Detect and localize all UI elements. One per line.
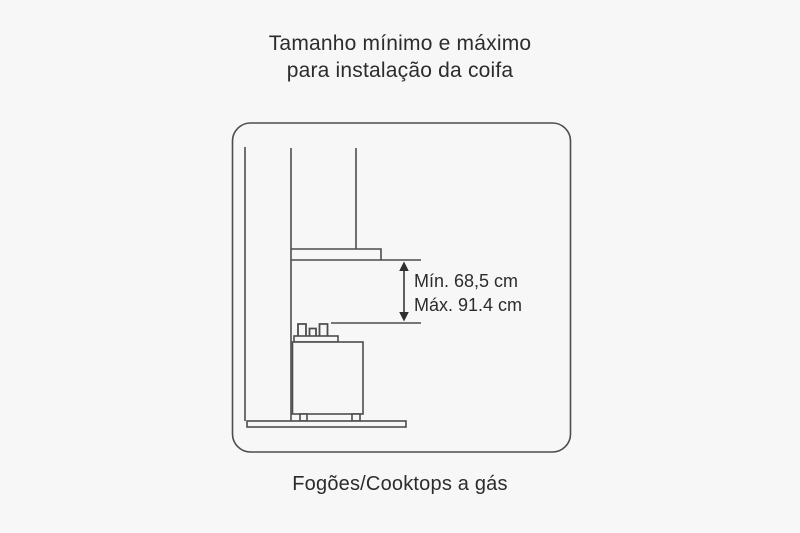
hood-shape: [291, 249, 421, 260]
burner-grates-icon: [298, 324, 328, 336]
diagram-frame: [233, 123, 571, 452]
max-distance-label: Máx. 91.4 cm: [414, 295, 522, 315]
distance-arrow: [399, 262, 409, 322]
arrow-up-head-icon: [399, 262, 409, 272]
stove-body: [293, 342, 364, 414]
hood-outline: [291, 249, 381, 260]
arrow-down-head-icon: [399, 312, 409, 322]
floor-line: [247, 421, 406, 427]
min-distance-label: Mín. 68,5 cm: [414, 271, 518, 291]
gas-cooktop-shape: [293, 324, 364, 421]
cooktop-plate: [294, 336, 338, 342]
diagram-caption: Fogões/Cooktops a gás: [0, 473, 800, 496]
wall-lines: [245, 147, 291, 421]
installation-diagram: Mín. 68,5 cm Máx. 91.4 cm: [0, 0, 800, 533]
stove-right-foot: [352, 414, 360, 421]
screenshot-canvas: Tamanho mínimo e máximo para instalação …: [0, 0, 800, 533]
stove-left-foot: [300, 414, 307, 421]
